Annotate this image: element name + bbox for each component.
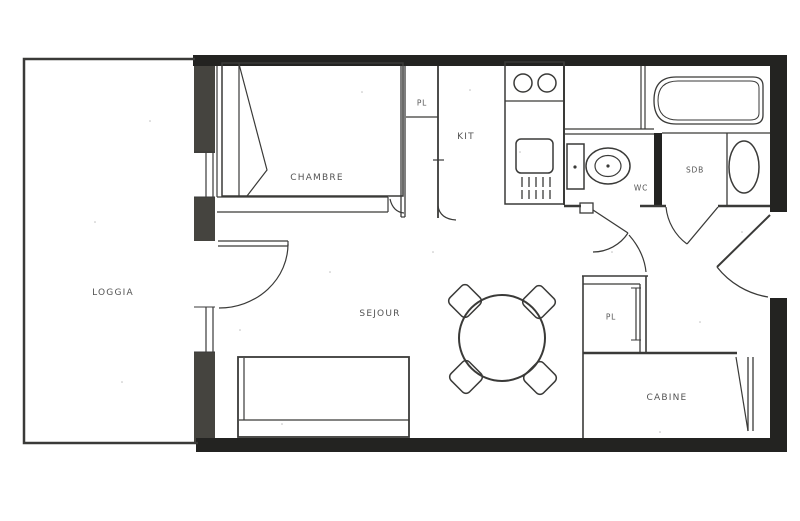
table-top-icon (459, 295, 545, 381)
room-label-wc: WC (634, 184, 648, 193)
chair-icon (448, 359, 485, 396)
room-label-pl-top: PL (417, 99, 427, 108)
chair-icon (447, 283, 484, 320)
dining-table (447, 283, 559, 397)
floor-plan-page: LOGGIA CHAMBRE KIT PL WC SDB SEJOUR PL C… (0, 0, 800, 521)
chair-icon (522, 360, 559, 397)
hob-burner-icon (514, 74, 532, 92)
hob-burner-icon (538, 74, 556, 92)
loggia-outline (24, 59, 198, 443)
room-label-loggia: LOGGIA (92, 288, 134, 298)
scan-noise (94, 89, 743, 433)
entrance-door (717, 215, 770, 297)
bathtub (654, 77, 763, 124)
loggia-windows (194, 152, 215, 352)
wc-walls (564, 62, 666, 206)
drainer-lines-icon (522, 177, 550, 199)
kit-walls (406, 66, 456, 220)
sdb-door (666, 207, 718, 244)
kitchen-sink-icon (516, 139, 553, 173)
cabine-walls (583, 353, 753, 431)
room-label-kit: KIT (457, 132, 475, 142)
perimeter-walls (193, 55, 787, 452)
sdb-walls (662, 133, 770, 206)
hall-closet (582, 276, 648, 438)
kitchen-unit (505, 62, 564, 204)
floorplan-drawing (0, 0, 800, 521)
room-label-cabine: CABINE (647, 393, 688, 403)
washbasin (729, 141, 759, 193)
room-label-chambre: CHAMBRE (290, 173, 344, 183)
sofa-bed (238, 357, 409, 437)
loggia-door (218, 241, 288, 308)
toilet (567, 144, 630, 189)
room-label-pl-hall: PL (606, 313, 616, 322)
room-label-sejour: SEJOUR (359, 309, 400, 319)
party-wall-segments (194, 58, 215, 442)
room-label-sdb: SDB (686, 166, 704, 175)
wc-door (580, 203, 646, 272)
